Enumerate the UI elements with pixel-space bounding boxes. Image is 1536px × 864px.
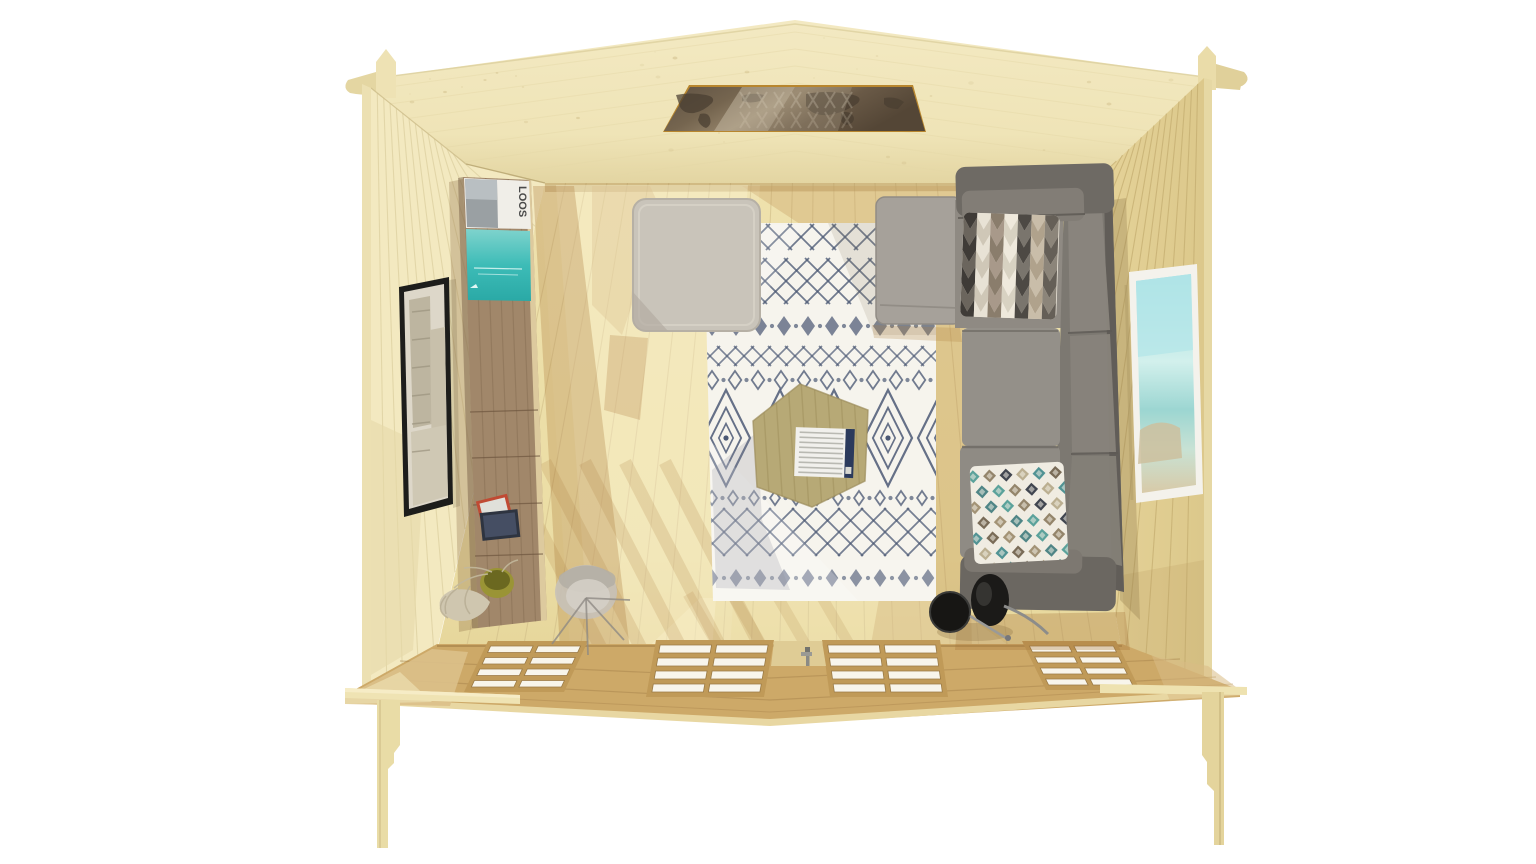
- svg-text:LOOS: LOOS: [516, 186, 528, 217]
